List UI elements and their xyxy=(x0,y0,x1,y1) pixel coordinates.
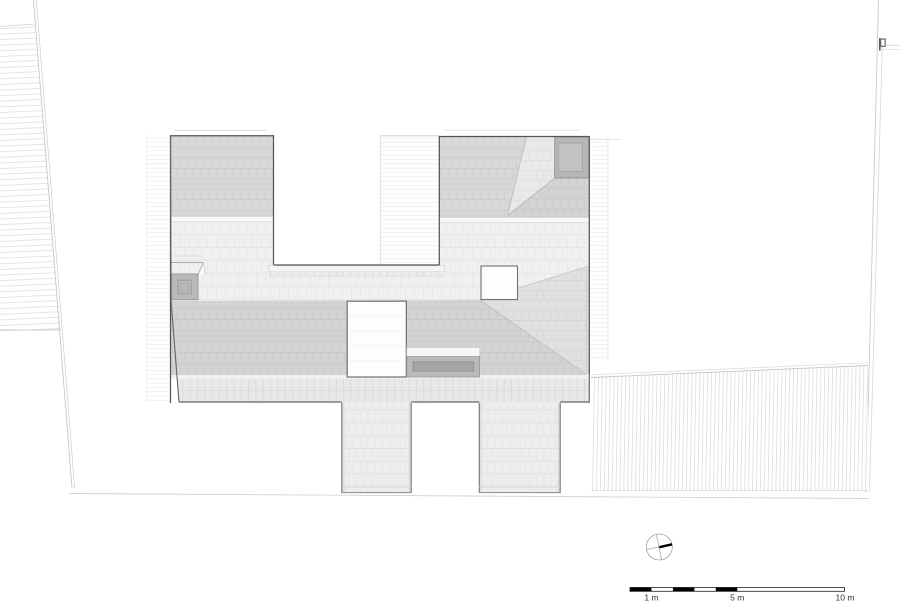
svg-text:1 m: 1 m xyxy=(644,593,658,603)
svg-text:10 m: 10 m xyxy=(836,593,855,603)
svg-text:5 m: 5 m xyxy=(730,593,744,603)
